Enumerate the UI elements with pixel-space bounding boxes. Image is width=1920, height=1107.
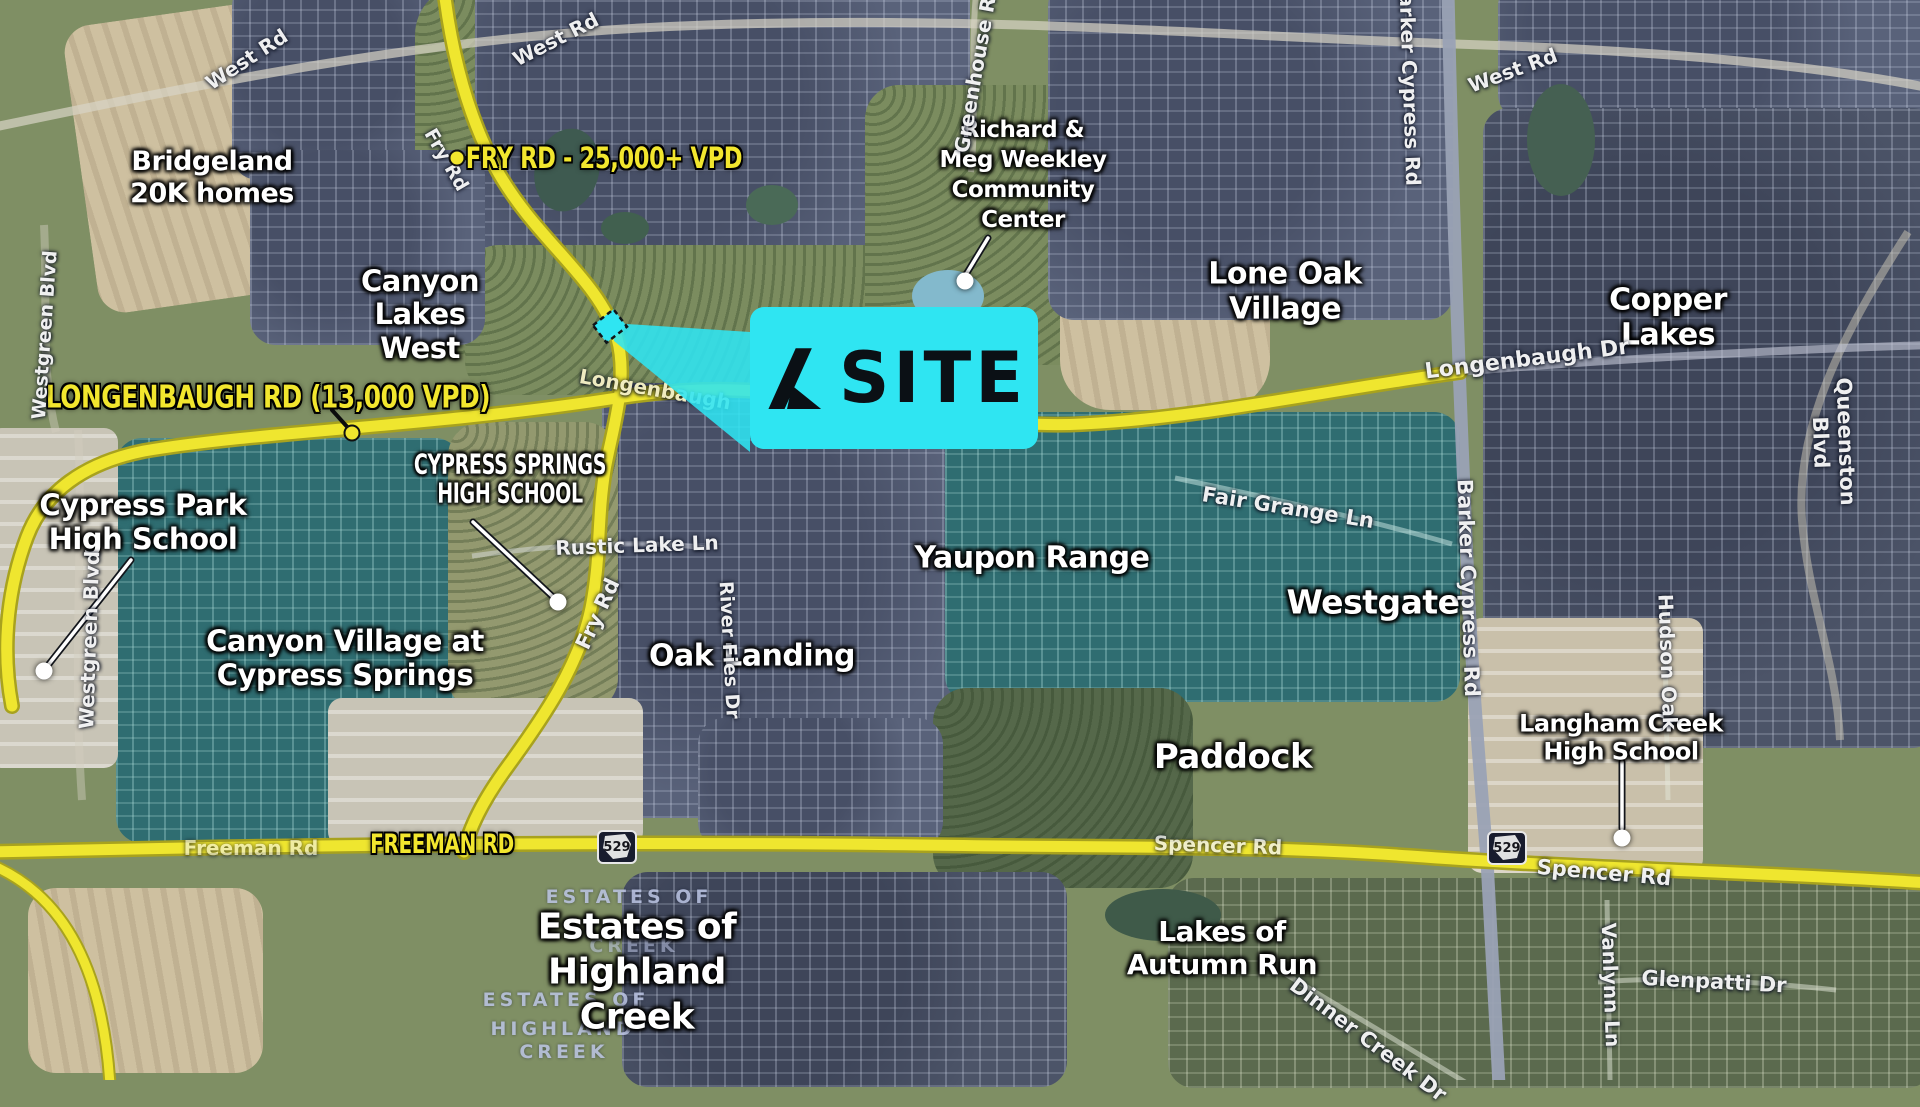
area-label-lone-oak-village: Lone Oak Village — [1208, 257, 1362, 328]
street-label-spencer-rd-w: Spencer Rd — [1153, 832, 1282, 860]
street-label-hudson-oak: Hudson Oak — [1653, 594, 1681, 731]
langham-creek-hs-label: Langham Creek High School — [1519, 710, 1723, 767]
weekley-center-dot — [957, 273, 974, 290]
langham-creek-hs-dot — [1614, 830, 1631, 847]
freeman-rd-callout: FREEMAN RD — [345, 829, 539, 861]
area-label-lakes-autumn-run: Lakes of Autumn Run — [1127, 915, 1317, 981]
street-label-freeman-rd-map: Freeman Rd — [184, 837, 319, 861]
street-label-vanlynn-ln: Vanlynn Ln — [1596, 922, 1624, 1047]
longenbaugh-rd-callout-text: LONGENBAUGH RD (13,000 VPD) — [46, 380, 491, 417]
cypress-springs-hs-dot — [550, 594, 567, 611]
aerial-site-map: { "colors": { "site_cyan": "#2fe5f2", "r… — [0, 0, 1920, 1080]
area-label-canyon-village: Canyon Village at Cypress Springs — [206, 624, 484, 692]
area-label-paddock: Paddock — [1154, 737, 1312, 777]
fry-rd-callout: FRY RD - 25,000+ VPD — [427, 141, 781, 175]
highway-shield-529-spencer: 529 — [1487, 831, 1527, 865]
fry-rd-callout-dot — [449, 150, 466, 167]
area-label-westgate: Westgate — [1286, 584, 1459, 623]
cypress-springs-hs-text: CYPRESS SPRINGS HIGH SCHOOL — [414, 450, 606, 509]
site-label: SITE — [839, 337, 1027, 419]
fry-rd-callout-text: FRY RD - 25,000+ VPD — [466, 141, 742, 175]
longenbaugh-rd-callout: LONGENBAUGH RD (13,000 VPD) — [0, 380, 546, 417]
highway-shield-529-freeman: 529 — [597, 830, 637, 864]
map-sublabel-creek-left: CREEK — [519, 1041, 608, 1063]
street-label-queenston-blvd: Queenston Blvd — [1806, 377, 1860, 507]
map-sublabel-estates-of-top: ESTATES OF — [546, 886, 713, 908]
site-beam — [611, 323, 750, 452]
freeman-rd-callout-text: FREEMAN RD — [370, 829, 514, 861]
cypress-park-hs-dot — [36, 663, 53, 680]
site-callout: SITE — [750, 307, 1038, 449]
area-label-oak-landing: Oak Landing — [649, 638, 855, 673]
cypress-park-hs-label: Cypress Park High School — [39, 488, 246, 556]
area-label-bridgeland: Bridgeland 20K homes — [130, 146, 294, 210]
shield-number: 529 — [1493, 841, 1520, 856]
brand-logo-icon — [761, 343, 823, 413]
area-label-yaupon-range: Yaupon Range — [915, 540, 1150, 575]
area-label-estates-highland-creek: Estates of Highland Creek — [538, 905, 737, 1040]
area-label-canyon-lakes-west: Canyon Lakes West — [361, 265, 479, 365]
longenbaugh-callout-dot — [344, 425, 361, 442]
shield-number: 529 — [603, 840, 630, 855]
cypress-springs-hs-label: CYPRESS SPRINGS HIGH SCHOOL — [369, 450, 652, 509]
